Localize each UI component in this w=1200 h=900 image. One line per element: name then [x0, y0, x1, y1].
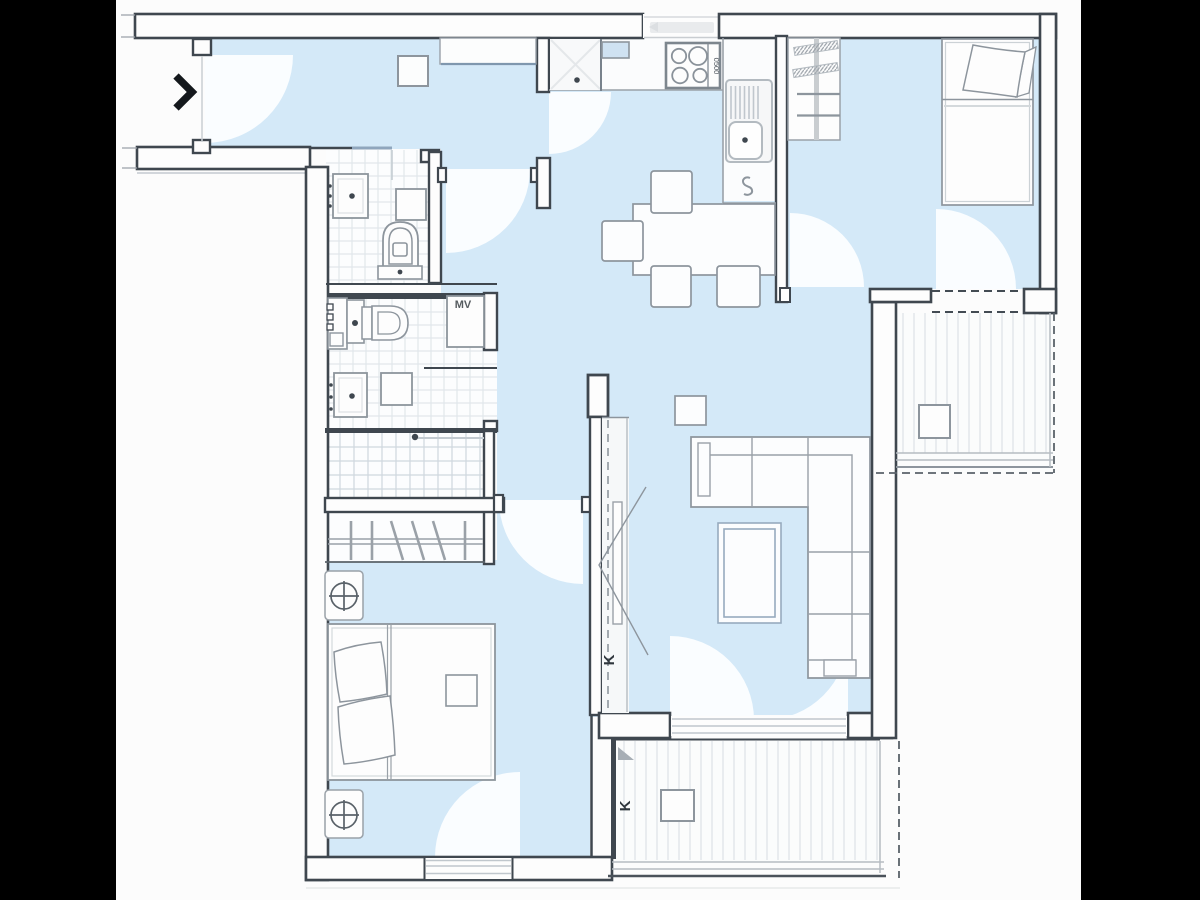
svg-text:K: K [617, 800, 634, 811]
svg-text:0500: 0500 [712, 58, 721, 75]
svg-text:MV: MV [455, 299, 472, 311]
svg-text:K: K [601, 654, 618, 665]
